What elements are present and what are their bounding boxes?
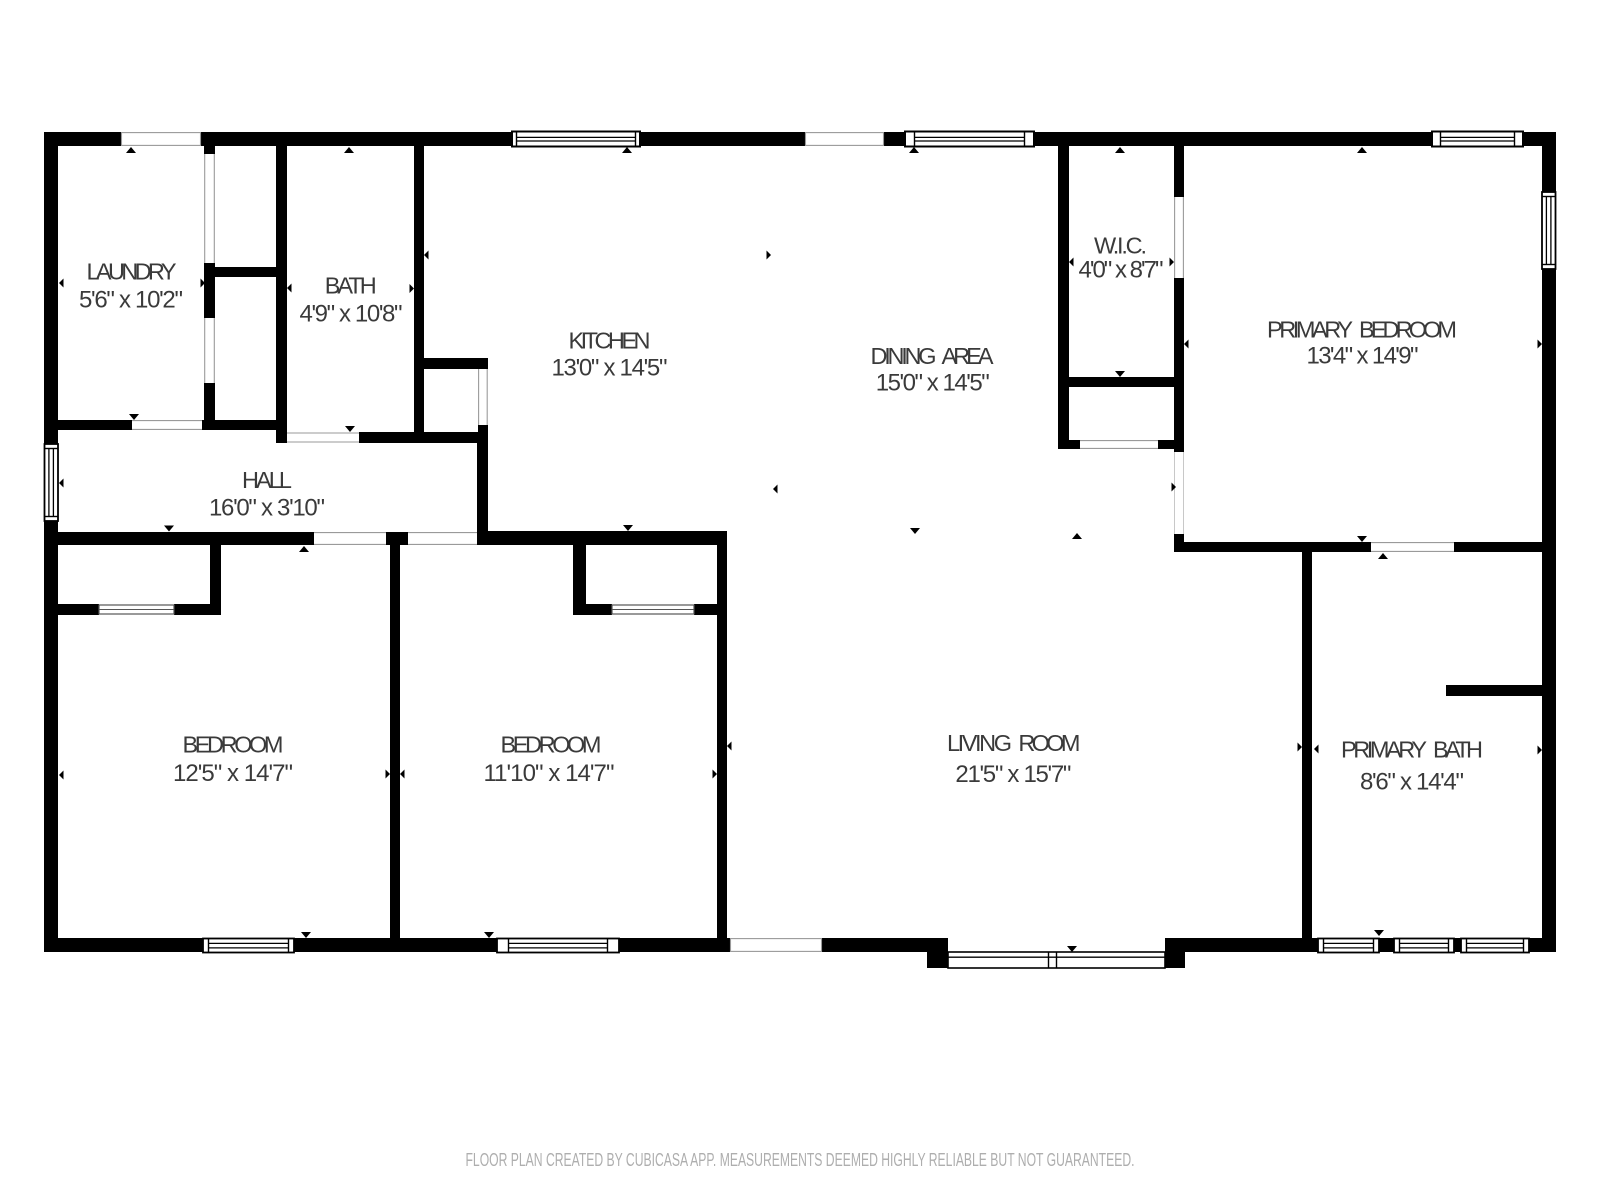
- svg-text:16'0" x 3'10": 16'0" x 3'10": [209, 495, 325, 522]
- svg-text:BEDROOM: BEDROOM: [501, 732, 602, 758]
- svg-text:BEDROOM: BEDROOM: [183, 732, 284, 758]
- svg-text:21'5" x 15'7": 21'5" x 15'7": [955, 761, 1071, 788]
- svg-text:8'6" x 14'4": 8'6" x 14'4": [1360, 769, 1464, 796]
- svg-text:15'0" x 14'5": 15'0" x 14'5": [876, 370, 990, 397]
- svg-text:5'6" x 10'2": 5'6" x 10'2": [79, 287, 183, 314]
- svg-text:HALL: HALL: [242, 467, 292, 493]
- svg-text:13'4" x 14'9": 13'4" x 14'9": [1307, 343, 1419, 370]
- svg-text:LIVING: LIVING: [947, 730, 1012, 756]
- svg-text:12'5" x 14'7": 12'5" x 14'7": [173, 760, 293, 787]
- svg-text:4'9" x 10'8": 4'9" x 10'8": [300, 301, 403, 328]
- svg-text:PRIMARY: PRIMARY: [1267, 317, 1353, 343]
- svg-text:4'0" x 8'7": 4'0" x 8'7": [1079, 257, 1164, 284]
- svg-text:KITCHEN: KITCHEN: [569, 328, 651, 354]
- svg-text:W.I.C.: W.I.C.: [1094, 233, 1147, 259]
- svg-text:DINING: DINING: [871, 343, 937, 369]
- svg-text:13'0" x 14'5": 13'0" x 14'5": [552, 355, 668, 382]
- svg-text:BATH: BATH: [1433, 737, 1483, 763]
- svg-text:FLOOR PLAN CREATED BY CUBICASA: FLOOR PLAN CREATED BY CUBICASA APP. MEAS…: [466, 1149, 1135, 1170]
- svg-text:ROOM: ROOM: [1018, 730, 1080, 756]
- svg-text:LAUNDRY: LAUNDRY: [87, 259, 177, 285]
- svg-text:PRIMARY: PRIMARY: [1341, 737, 1427, 763]
- svg-text:BATH: BATH: [325, 273, 377, 299]
- svg-text:11'10" x 14'7": 11'10" x 14'7": [484, 760, 615, 787]
- svg-text:AREA: AREA: [942, 343, 994, 369]
- svg-text:BEDROOM: BEDROOM: [1359, 317, 1457, 343]
